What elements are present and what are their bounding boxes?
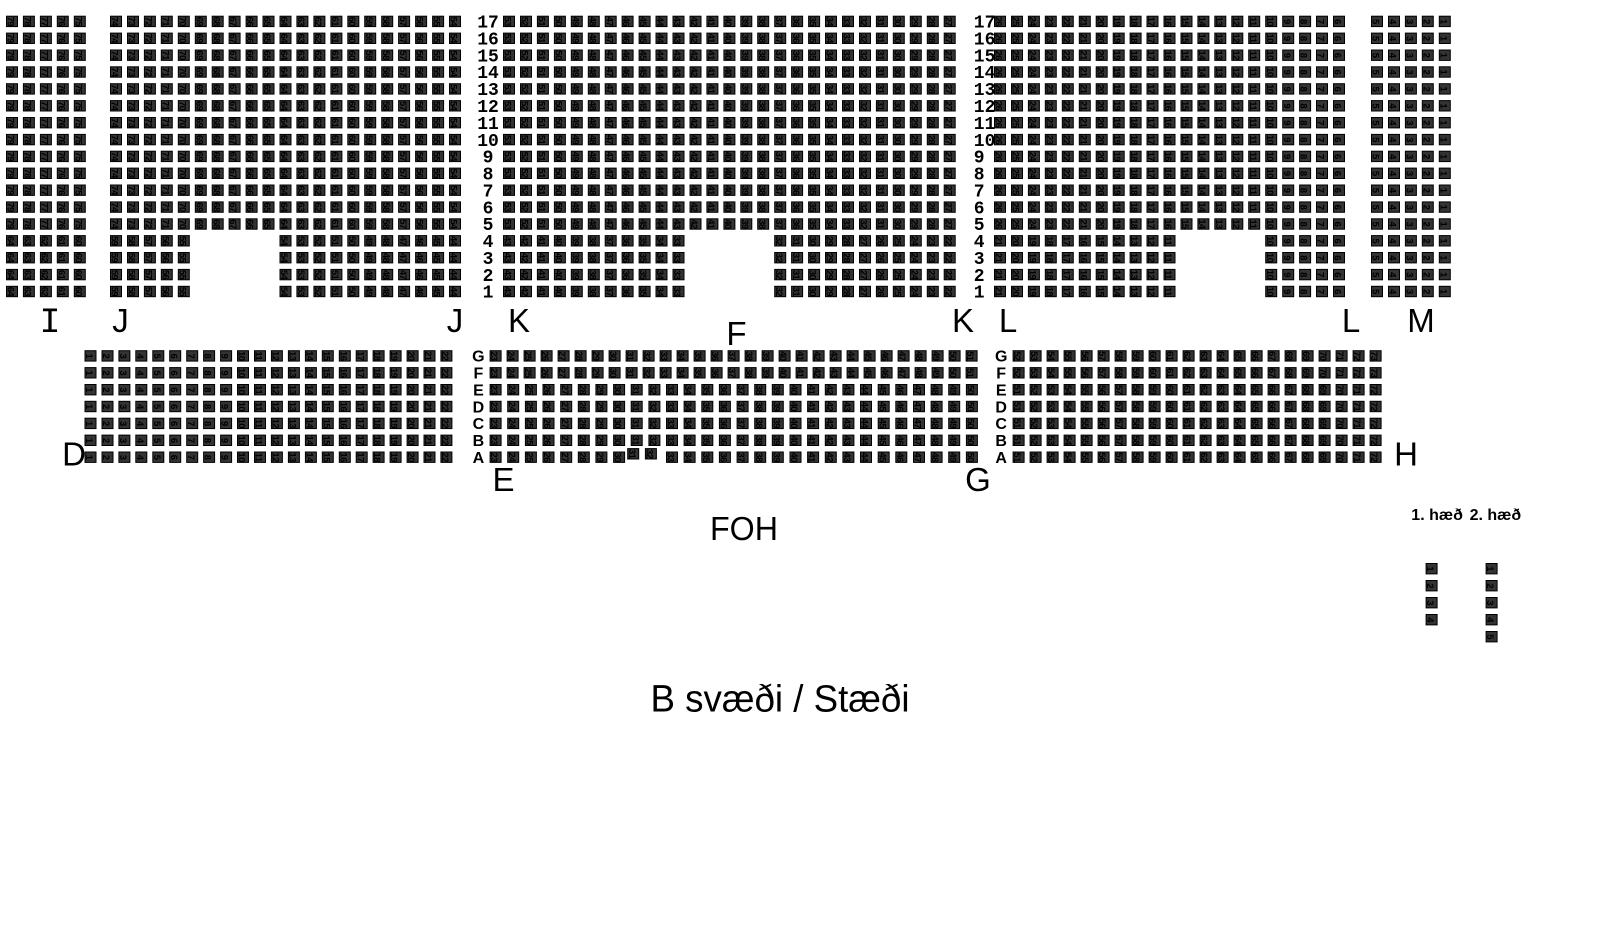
svg-text:29: 29 [594,402,605,412]
svg-text:47: 47 [603,219,614,229]
svg-text:7: 7 [1315,86,1326,91]
svg-text:37: 37 [773,118,784,128]
svg-text:67: 67 [1283,436,1294,446]
svg-text:14: 14 [304,452,315,463]
svg-text:16: 16 [1077,270,1088,280]
svg-text:52: 52 [1011,351,1022,361]
svg-text:19: 19 [1111,185,1122,195]
svg-text:58: 58 [380,67,391,77]
svg-text:27: 27 [858,270,869,280]
svg-text:48: 48 [586,67,597,77]
svg-text:55: 55 [431,118,442,129]
svg-text:16: 16 [1162,50,1173,60]
svg-text:67: 67 [227,50,238,60]
svg-text:17: 17 [1145,219,1156,229]
svg-text:E: E [492,461,514,498]
svg-text:50: 50 [553,84,564,94]
svg-text:1. hæð: 1. hæð [1411,507,1463,524]
svg-text:61: 61 [329,34,340,45]
svg-text:67: 67 [227,17,238,27]
svg-text:9: 9 [219,353,230,358]
svg-text:29: 29 [908,17,919,27]
svg-text:14: 14 [1196,185,1207,196]
svg-text:62: 62 [312,202,323,212]
svg-text:42: 42 [823,402,834,412]
svg-text:67: 67 [227,152,238,162]
svg-text:6: 6 [1332,36,1343,41]
svg-text:18: 18 [1128,34,1139,44]
svg-text:63: 63 [295,152,306,162]
svg-text:74: 74 [109,118,120,129]
svg-text:31: 31 [624,368,635,379]
svg-text:34: 34 [824,67,835,78]
svg-text:43: 43 [671,135,682,145]
svg-text:15: 15 [320,402,331,413]
svg-text:44: 44 [448,253,459,264]
svg-text:33: 33 [841,101,852,111]
svg-text:71: 71 [1334,368,1345,379]
svg-text:49: 49 [569,84,580,94]
svg-text:41: 41 [705,101,716,112]
svg-text:36: 36 [620,236,631,246]
svg-text:12: 12 [270,351,281,361]
svg-text:66: 66 [244,169,255,179]
svg-text:63: 63 [22,287,33,297]
svg-text:33: 33 [665,452,676,462]
svg-text:51: 51 [536,118,547,129]
svg-text:69: 69 [1300,368,1311,378]
svg-text:71: 71 [159,34,170,45]
svg-text:47: 47 [603,135,614,145]
svg-text:39: 39 [739,101,750,111]
svg-text:14: 14 [304,402,315,413]
svg-text:37: 37 [603,287,614,297]
svg-text:65: 65 [261,101,272,112]
svg-text:20: 20 [1094,101,1105,111]
svg-text:64: 64 [278,152,289,163]
svg-text:58: 58 [380,219,391,229]
svg-text:10: 10 [1264,101,1275,111]
svg-text:13: 13 [1213,202,1224,212]
svg-text:42: 42 [823,419,834,429]
svg-text:35: 35 [700,436,711,447]
svg-text:56: 56 [1096,385,1107,395]
svg-text:3: 3 [1404,171,1415,176]
svg-text:76: 76 [55,185,66,195]
svg-text:29: 29 [908,101,919,111]
svg-text:14: 14 [1196,101,1207,112]
svg-text:20: 20 [1094,50,1105,60]
svg-text:63: 63 [295,118,306,128]
svg-text:2: 2 [100,353,111,358]
svg-text:69: 69 [193,50,204,60]
svg-text:42: 42 [688,118,699,128]
svg-text:16: 16 [1162,152,1173,162]
svg-text:22: 22 [942,253,953,263]
svg-text:13: 13 [287,436,298,446]
svg-text:28: 28 [925,34,936,44]
svg-text:9: 9 [1281,205,1292,210]
svg-text:27: 27 [942,135,953,145]
svg-text:29: 29 [908,219,919,229]
svg-text:67: 67 [227,202,238,212]
svg-text:8: 8 [1298,222,1309,227]
svg-text:70: 70 [176,152,187,162]
svg-text:19: 19 [1111,50,1122,60]
svg-text:3: 3 [1404,222,1415,227]
svg-text:72: 72 [1351,351,1362,361]
svg-text:73: 73 [126,101,137,111]
svg-text:18: 18 [1128,169,1139,179]
svg-text:45: 45 [637,185,648,196]
svg-text:27: 27 [858,236,869,246]
svg-text:76: 76 [55,135,66,145]
svg-text:27: 27 [942,152,953,162]
svg-text:9: 9 [1281,188,1292,193]
svg-text:70: 70 [176,34,187,44]
svg-text:25: 25 [1010,50,1021,61]
svg-text:42: 42 [688,17,699,27]
svg-text:37: 37 [735,419,746,429]
svg-text:2: 2 [1420,86,1431,91]
svg-text:10: 10 [236,436,247,446]
svg-text:57: 57 [397,219,408,229]
svg-text:18: 18 [1128,219,1139,229]
svg-text:22: 22 [1060,152,1071,162]
svg-text:16: 16 [1162,118,1173,128]
svg-text:7: 7 [1315,120,1326,125]
svg-text:30: 30 [612,452,623,462]
svg-text:6: 6 [1332,137,1343,142]
svg-text:51: 51 [1011,436,1022,447]
svg-text:34: 34 [682,436,693,447]
svg-text:46: 46 [894,436,905,446]
svg-text:78: 78 [22,169,33,179]
svg-text:12: 12 [1230,202,1241,212]
svg-text:6: 6 [168,421,179,426]
svg-text:19: 19 [1111,34,1122,44]
svg-text:15: 15 [1094,270,1105,281]
svg-text:51: 51 [536,84,547,95]
svg-text:63: 63 [295,34,306,44]
svg-text:9: 9 [1281,222,1292,227]
svg-text:6: 6 [168,438,179,443]
svg-text:71: 71 [159,17,170,28]
svg-text:57: 57 [1113,452,1124,462]
svg-text:57: 57 [397,17,408,27]
svg-text:45: 45 [862,368,873,379]
svg-text:73: 73 [1368,351,1379,361]
svg-text:12: 12 [1230,17,1241,27]
svg-text:41: 41 [705,84,716,95]
svg-text:66: 66 [244,67,255,77]
svg-text:48: 48 [929,419,940,429]
svg-text:63: 63 [22,270,33,280]
svg-text:10: 10 [1264,17,1275,27]
svg-text:3: 3 [117,370,128,375]
svg-text:37: 37 [735,452,746,462]
svg-text:32: 32 [647,436,658,446]
svg-text:32: 32 [641,351,652,361]
svg-text:58: 58 [126,236,137,246]
svg-text:10: 10 [1264,219,1275,229]
svg-text:G: G [965,461,991,498]
svg-text:33: 33 [841,34,852,44]
svg-text:18: 18 [1128,118,1139,128]
svg-text:70: 70 [176,169,187,179]
svg-text:79: 79 [5,169,16,179]
svg-text:28: 28 [925,219,936,229]
svg-text:44: 44 [654,17,665,28]
svg-text:11: 11 [253,419,264,429]
svg-text:49: 49 [569,50,580,60]
svg-text:71: 71 [159,202,170,213]
svg-text:59: 59 [1147,419,1158,429]
svg-text:78: 78 [22,152,33,162]
svg-text:30: 30 [891,84,902,94]
svg-text:61: 61 [329,118,340,129]
svg-text:38: 38 [743,351,754,361]
svg-text:75: 75 [72,135,83,146]
svg-text:57: 57 [1096,351,1107,361]
svg-text:65: 65 [261,34,272,45]
svg-text:72: 72 [143,67,154,77]
svg-text:65: 65 [261,169,272,180]
svg-text:34: 34 [824,185,835,196]
svg-text:43: 43 [502,287,513,297]
svg-text:53: 53 [502,34,513,44]
svg-text:31: 31 [875,34,886,45]
svg-text:36: 36 [790,219,801,229]
svg-text:17: 17 [1145,17,1156,27]
svg-text:75: 75 [72,118,83,129]
svg-text:66: 66 [244,152,255,162]
svg-text:63: 63 [1198,368,1209,378]
svg-text:62: 62 [312,219,323,229]
svg-text:51: 51 [1011,419,1022,430]
svg-text:63: 63 [295,202,306,212]
svg-text:77: 77 [39,152,50,162]
svg-text:14: 14 [1196,135,1207,146]
svg-text:2: 2 [1420,137,1431,142]
svg-text:1: 1 [974,284,985,304]
svg-text:9: 9 [1281,272,1292,277]
svg-text:59: 59 [1147,452,1158,462]
svg-text:30: 30 [807,253,818,263]
svg-text:73: 73 [126,169,137,179]
svg-text:42: 42 [823,436,834,446]
svg-text:59: 59 [1130,351,1141,361]
svg-text:38: 38 [756,169,767,179]
svg-text:13: 13 [1213,34,1224,44]
svg-text:27: 27 [942,185,953,195]
svg-text:25: 25 [1010,101,1021,112]
svg-text:40: 40 [722,17,733,27]
svg-text:8: 8 [1298,154,1309,159]
svg-text:34: 34 [824,34,835,45]
svg-text:31: 31 [629,419,640,430]
svg-text:50: 50 [947,368,958,378]
svg-text:45: 45 [431,270,442,281]
svg-text:66: 66 [244,135,255,145]
svg-text:56: 56 [414,101,425,111]
svg-text:46: 46 [894,385,905,395]
svg-text:55: 55 [431,17,442,28]
svg-text:7: 7 [1315,289,1326,294]
svg-text:27: 27 [559,436,570,446]
svg-text:24: 24 [505,351,516,362]
svg-text:63: 63 [1215,419,1226,429]
svg-text:22: 22 [439,452,450,462]
svg-text:50: 50 [553,185,564,195]
svg-text:24: 24 [908,236,919,247]
svg-text:37: 37 [726,351,737,361]
svg-text:75: 75 [72,84,83,95]
svg-text:74: 74 [109,84,120,95]
svg-text:6: 6 [1332,120,1343,125]
svg-text:31: 31 [875,219,886,230]
svg-text:19: 19 [388,385,399,395]
svg-text:22: 22 [1060,17,1071,27]
svg-text:43: 43 [671,202,682,212]
svg-text:45: 45 [876,436,887,447]
svg-text:70: 70 [176,101,187,111]
svg-text:52: 52 [1028,402,1039,412]
svg-text:15: 15 [320,436,331,447]
svg-text:57: 57 [1096,368,1107,378]
svg-text:15: 15 [1094,253,1105,264]
svg-text:17: 17 [1145,135,1156,145]
svg-text:41: 41 [806,452,817,463]
svg-text:29: 29 [594,419,605,429]
svg-text:46: 46 [620,152,631,162]
svg-text:78: 78 [22,202,33,212]
svg-text:42: 42 [688,50,699,60]
svg-text:42: 42 [688,202,699,212]
svg-text:15: 15 [1179,101,1190,112]
svg-text:25: 25 [891,287,902,298]
svg-text:62: 62 [39,253,50,263]
svg-text:13: 13 [1128,270,1139,280]
svg-text:40: 40 [553,287,564,297]
svg-text:25: 25 [1010,84,1021,95]
svg-text:68: 68 [1300,436,1311,446]
svg-text:51: 51 [964,368,975,379]
svg-text:41: 41 [705,17,716,28]
svg-text:50: 50 [553,50,564,60]
svg-text:60: 60 [346,50,357,60]
svg-text:59: 59 [363,118,374,128]
svg-text:55: 55 [431,67,442,78]
svg-text:42: 42 [688,152,699,162]
svg-text:63: 63 [22,236,33,246]
svg-text:68: 68 [210,67,221,77]
svg-text:56: 56 [1096,452,1107,462]
svg-text:68: 68 [1300,402,1311,412]
svg-text:77: 77 [39,50,50,60]
svg-text:29: 29 [594,436,605,446]
svg-text:34: 34 [682,385,693,396]
svg-text:3: 3 [1404,188,1415,193]
svg-text:49: 49 [947,385,958,395]
svg-text:15: 15 [1179,219,1190,230]
svg-text:18: 18 [371,368,382,378]
svg-text:62: 62 [312,118,323,128]
svg-text:25: 25 [891,253,902,264]
svg-text:71: 71 [159,152,170,163]
svg-text:40: 40 [788,436,799,446]
svg-text:3: 3 [117,455,128,460]
svg-text:15: 15 [320,419,331,430]
svg-text:12: 12 [1230,84,1241,94]
svg-text:71: 71 [1334,351,1345,362]
svg-text:7: 7 [185,404,196,409]
svg-text:57: 57 [397,202,408,212]
svg-text:27: 27 [559,419,570,429]
svg-text:11: 11 [1247,67,1258,77]
svg-text:43: 43 [841,402,852,412]
svg-text:57: 57 [397,50,408,60]
svg-text:46: 46 [620,118,631,128]
svg-text:39: 39 [770,436,781,446]
svg-text:44: 44 [845,368,856,379]
svg-text:26: 26 [541,436,552,446]
svg-text:7: 7 [1315,222,1326,227]
svg-text:35: 35 [700,452,711,463]
svg-text:45: 45 [637,169,648,180]
svg-text:29: 29 [908,169,919,179]
svg-text:E: E [473,383,484,400]
svg-text:33: 33 [671,287,682,297]
svg-text:46: 46 [620,169,631,179]
svg-text:62: 62 [1198,419,1209,429]
svg-text:50: 50 [553,169,564,179]
svg-text:79: 79 [5,219,16,229]
svg-text:65: 65 [261,67,272,78]
svg-text:11: 11 [1247,34,1258,44]
svg-text:54: 54 [1045,368,1056,379]
svg-text:40: 40 [722,169,733,179]
svg-text:29: 29 [824,287,835,297]
svg-text:69: 69 [193,34,204,44]
svg-text:28: 28 [576,402,587,412]
svg-text:47: 47 [912,436,923,446]
svg-text:12: 12 [1230,135,1241,145]
svg-text:45: 45 [637,135,648,146]
svg-text:26: 26 [875,270,886,280]
svg-text:13: 13 [287,351,298,361]
svg-text:30: 30 [612,402,623,412]
svg-text:54: 54 [448,17,459,28]
svg-text:7: 7 [185,353,196,358]
svg-text:37: 37 [773,101,784,111]
svg-text:18: 18 [1128,101,1139,111]
svg-text:J: J [447,302,464,339]
svg-text:63: 63 [295,185,306,195]
svg-text:11: 11 [1162,270,1173,280]
svg-text:6: 6 [1332,19,1343,24]
svg-text:53: 53 [502,202,513,212]
svg-text:73: 73 [126,219,137,229]
svg-text:61: 61 [1181,419,1192,430]
svg-text:54: 54 [278,287,289,298]
svg-text:67: 67 [1283,419,1294,429]
svg-text:53: 53 [502,84,513,94]
svg-text:37: 37 [773,17,784,27]
svg-text:27: 27 [942,101,953,111]
svg-text:25: 25 [524,385,535,396]
svg-text:19: 19 [388,402,399,412]
